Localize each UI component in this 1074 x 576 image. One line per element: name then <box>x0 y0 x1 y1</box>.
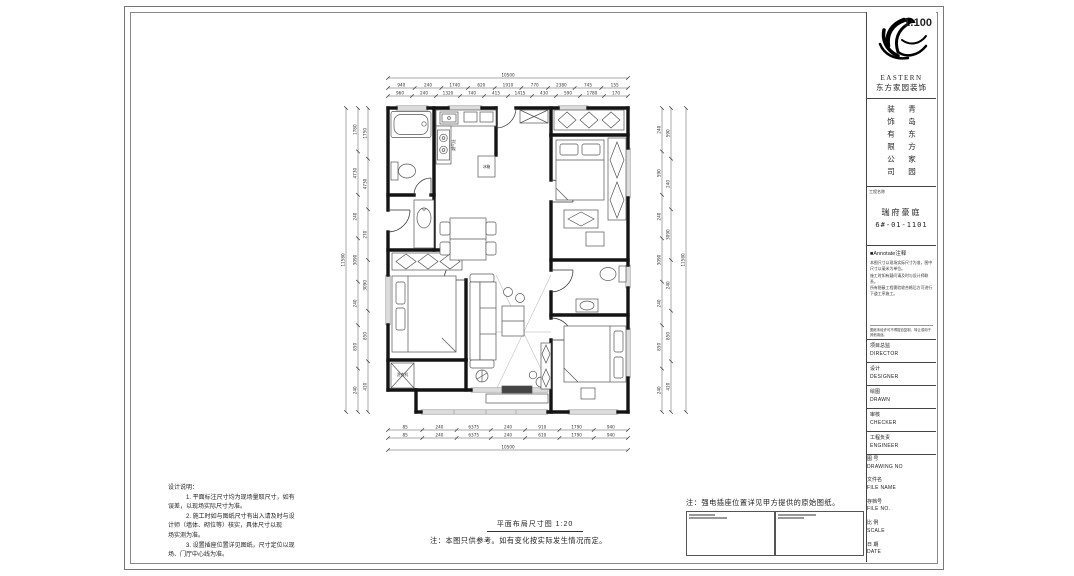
dim-label: 1780 <box>587 90 598 95</box>
dim-label: 1320 <box>443 90 454 95</box>
field-label-en: SCALE <box>867 528 936 534</box>
dim-label: 1790 <box>571 424 582 429</box>
title-field-row: 审核CHECKER <box>867 409 936 432</box>
design-notes-title: 设计说明： <box>168 484 346 494</box>
poufs <box>504 288 525 303</box>
project-label: 工程名称 <box>869 189 885 195</box>
dim-label: 6375 <box>468 432 479 437</box>
dim-label: 2380 <box>556 82 567 87</box>
field-label-cn: 设计 <box>870 365 936 372</box>
meta-box-right <box>775 511 864 556</box>
dim-label: 620 <box>477 82 485 87</box>
dim-label: 910 <box>538 424 546 429</box>
project-block: 工程名称 瑞府豪庭 6#-01-1101 <box>867 187 936 246</box>
dim-label: 240 <box>665 180 670 188</box>
dim-label: 940 <box>607 432 615 437</box>
field-label-en: ENGINEER <box>870 443 936 449</box>
desk-tr <box>586 232 604 246</box>
dim-label: 240 <box>435 424 443 429</box>
file-fields: 图 号DRAWING NO文件名FILE NAME存档号FILE NO.比 例S… <box>867 455 936 562</box>
washer-label: 洗衣机 <box>397 372 409 377</box>
dim-label: 240 <box>435 432 443 437</box>
dim-label: 1910 <box>503 82 514 87</box>
dim-chain: 940240174062019107702380745155 <box>386 82 630 89</box>
dim-chain: 175047302703090850410 <box>362 106 369 414</box>
dim-label: 85 <box>402 432 408 437</box>
dim-label: 850 <box>352 343 357 351</box>
field-label-en: CHECKER <box>870 420 936 426</box>
annotate-line: 下道工序施工。 <box>870 291 933 297</box>
dim-label: 240 <box>352 299 357 307</box>
title-field-row: 比 例SCALE1:100 <box>867 519 936 540</box>
toilet-1 <box>391 162 416 180</box>
floor-lamp <box>476 370 488 382</box>
annotate-block: ■Annotate注释 本图尺寸以现场实际尺寸为准，图中尺寸以毫米为单位。施工时… <box>867 246 936 340</box>
dim-label: 430 <box>540 90 548 95</box>
dim-label: 960 <box>396 90 404 95</box>
dim-label: 4730 <box>352 167 357 178</box>
title-field-row: 存档号FILE NO. <box>867 498 936 519</box>
dim-chain: 960240132074041514154305901780170 <box>386 90 630 97</box>
dim-label: 6375 <box>468 424 479 429</box>
dim-label: 590 <box>564 90 572 95</box>
dim-chain: 2405902403090240850240 <box>656 106 663 414</box>
plan-caption-block: 平面布局尺寸图 1:20 注：本图只供参考。如有变化按实际发生情况而定。 <box>430 513 640 546</box>
dim-chain: 11580 <box>680 106 687 414</box>
dim-label: 11580 <box>680 253 685 267</box>
plan-caption: 平面布局尺寸图 1:20 <box>487 519 584 532</box>
dim-label: 410 <box>362 382 367 390</box>
field-label-en: DESIGNER <box>870 374 936 380</box>
annotate-footer: 图纸未经许可不得擅自复制、转让或用于其他用途。 <box>870 325 933 338</box>
dim-label: 940 <box>607 424 615 429</box>
field-label-en: DRAWN <box>870 397 936 403</box>
brand-name-cn: 东方家园装饰 <box>867 82 936 93</box>
dim-label: 740 <box>468 90 476 95</box>
dim-label: 3090 <box>362 280 367 291</box>
title-field-row: 日 期DATE <box>867 541 936 562</box>
fridge-label: 冰箱 <box>483 164 491 169</box>
dim-label: 1750 <box>362 128 367 139</box>
bed-tr <box>556 140 604 200</box>
field-label-en: DRAWING NO <box>867 464 936 470</box>
bed-bl <box>392 276 456 352</box>
dim-label: 240 <box>656 212 661 220</box>
dim-label: 415 <box>492 90 500 95</box>
brand-name: EASTERN <box>867 74 936 82</box>
field-label-cn: 绘图 <box>870 388 936 395</box>
title-block: EASTERN 东方家园装饰 装饰有限公司 青岛东方家园 工程名称 瑞府豪庭 6… <box>866 12 936 562</box>
dim-chain: 8524063752406101790940 <box>386 432 630 439</box>
dim-label: 240 <box>352 386 357 394</box>
corridor-cabinet <box>541 343 551 389</box>
dn-line: 1. 平面标注尺寸均为现场量取尺寸，如有 <box>168 494 346 504</box>
field-label-cn: 日 期 <box>867 541 936 548</box>
dim-label: 3090 <box>656 254 661 265</box>
field-label-cn: 图 号 <box>867 455 936 462</box>
bed-br <box>564 326 626 382</box>
drawing-sheet: { "title_block": { "logo": { "brand": "E… <box>0 0 1074 576</box>
washbasin <box>414 200 434 248</box>
dim-label: 240 <box>420 90 428 95</box>
dim-label: 590 <box>656 169 661 177</box>
dim-label: 240 <box>656 299 661 307</box>
dim-chain: 178047302403090240850240 <box>352 106 359 414</box>
dim-label: 270 <box>362 230 367 238</box>
dim-label: 1790 <box>571 432 582 437</box>
dn-line: 计师（墙体、砌位等）核实，具体尺寸以现 <box>168 522 346 532</box>
dim-label: 1415 <box>515 90 526 95</box>
dim-label: 240 <box>656 386 661 394</box>
stove-label: 燃气灶 <box>451 139 456 151</box>
dim-label: 85 <box>402 424 408 429</box>
title-field-row: 设计DESIGNER <box>867 363 936 386</box>
dim-label: 4730 <box>362 178 367 189</box>
dim-label: 11580 <box>340 253 345 267</box>
title-field-row: 项目总监DIRECTOR <box>867 340 936 363</box>
dim-label: 240 <box>352 212 357 220</box>
field-label-en: FILE NO. <box>867 506 936 512</box>
bench-tr <box>564 210 598 228</box>
dim-label: 240 <box>424 82 432 87</box>
dim-label: 1740 <box>449 82 460 87</box>
field-label-en: FILE NAME <box>867 485 936 491</box>
dn-line: 误差，以现场实际尺寸为准。 <box>168 503 346 513</box>
hall-wardrobe <box>554 110 624 130</box>
title-field-row: 文件名FILE NAME <box>867 476 936 497</box>
dn-line: 场、门厅中心线为准。 <box>168 551 346 561</box>
project-name: 瑞府豪庭 <box>867 207 936 218</box>
entry-cabinet <box>520 110 548 123</box>
company-name-col1: 装饰有限公司 <box>886 105 897 187</box>
dim-label: 10500 <box>501 444 515 449</box>
stool-br <box>581 388 595 399</box>
dn-line: 3. 设置插座位置详见图纸，尺寸定位以现 <box>168 542 346 552</box>
dim-chain: 10500 <box>386 72 630 79</box>
dim-label: 170 <box>612 90 620 95</box>
dim-chain: 5902403090240850410 <box>665 106 672 414</box>
company-name-col2: 青岛东方家园 <box>907 105 918 187</box>
title-field-row: 工程负责ENGINEER <box>867 432 936 455</box>
dim-label: 3090 <box>352 254 357 265</box>
toilet-2 <box>600 266 626 282</box>
sofa <box>470 274 496 368</box>
dim-label: 770 <box>531 82 539 87</box>
bathtub <box>391 112 431 138</box>
dim-label: 610 <box>538 432 546 437</box>
kitchen-sink <box>440 112 458 124</box>
meta-box-left <box>686 511 775 556</box>
title-field-row: 绘图DRAWN <box>867 386 936 409</box>
dim-chain: 11580 <box>340 106 347 414</box>
field-label-cn: 工程负责 <box>870 434 936 441</box>
dn-line: 场实测为准。 <box>168 532 346 542</box>
dim-label: 10500 <box>501 72 515 77</box>
socket-note: 注：强电插座位置详见甲方提供的原始图纸。 <box>686 498 840 508</box>
sink-2 <box>576 299 598 312</box>
coffee-table <box>502 306 524 336</box>
dining-table <box>440 218 496 260</box>
field-label-cn: 存档号 <box>867 498 936 505</box>
dim-label: 590 <box>665 129 670 137</box>
dim-label: 850 <box>665 332 670 340</box>
field-value: 1:100 <box>904 17 932 29</box>
dim-label: 410 <box>665 382 670 390</box>
meta-boxes <box>686 511 864 556</box>
project-unit: 6#-01-1101 <box>867 221 936 229</box>
dim-label: 850 <box>362 332 367 340</box>
dim-label: 1780 <box>352 124 357 135</box>
dim-chain: 8524063752409101790940 <box>386 424 630 431</box>
dim-label: 240 <box>504 424 512 429</box>
dim-label: 745 <box>584 82 592 87</box>
dn-line: 2. 施工时如与图纸尺寸有出入请及时与设 <box>168 513 346 523</box>
field-label-cn: 项目总监 <box>870 342 936 349</box>
dim-label: 3090 <box>665 229 670 240</box>
dim-label: 240 <box>656 125 661 133</box>
dim-label: 850 <box>656 343 661 351</box>
dim-chain: 10500 <box>386 444 630 451</box>
dim-label: 155 <box>611 82 619 87</box>
plan-caption-note: 注：本图只供参考。如有变化按实际发生情况而定。 <box>430 536 640 546</box>
dim-label: 940 <box>397 82 405 87</box>
field-label-en: DIRECTOR <box>870 351 936 357</box>
floor-plan: 1050094024017406201910770238074515596024… <box>336 60 708 474</box>
field-label-cn: 审核 <box>870 411 936 418</box>
dim-label: 240 <box>665 281 670 289</box>
field-label-en: DATE <box>867 549 936 555</box>
annotate-line: 施工时如有疑问请及时与设计师联系。 <box>870 273 933 286</box>
staff-fields: 项目总监DIRECTOR设计DESIGNER绘图DRAWN审核CHECKER工程… <box>867 340 936 455</box>
dim-label: 240 <box>504 432 512 437</box>
floor-plan-svg: 1050094024017406201910770238074515596024… <box>336 60 708 474</box>
stove <box>438 130 450 160</box>
field-label-cn: 比 例 <box>867 519 936 526</box>
title-field-row: 图 号DRAWING NO <box>867 455 936 476</box>
wardrobe-tr <box>608 138 626 220</box>
annotate-header: ■Annotate注释 <box>870 249 933 257</box>
design-notes: 设计说明： 1. 平面标注尺寸均为现场量取尺寸，如有误差，以现场实际尺寸为准。2… <box>168 484 346 561</box>
field-label-cn: 文件名 <box>867 476 936 483</box>
company-name-block: 装饰有限公司 青岛东方家园 <box>867 99 936 188</box>
